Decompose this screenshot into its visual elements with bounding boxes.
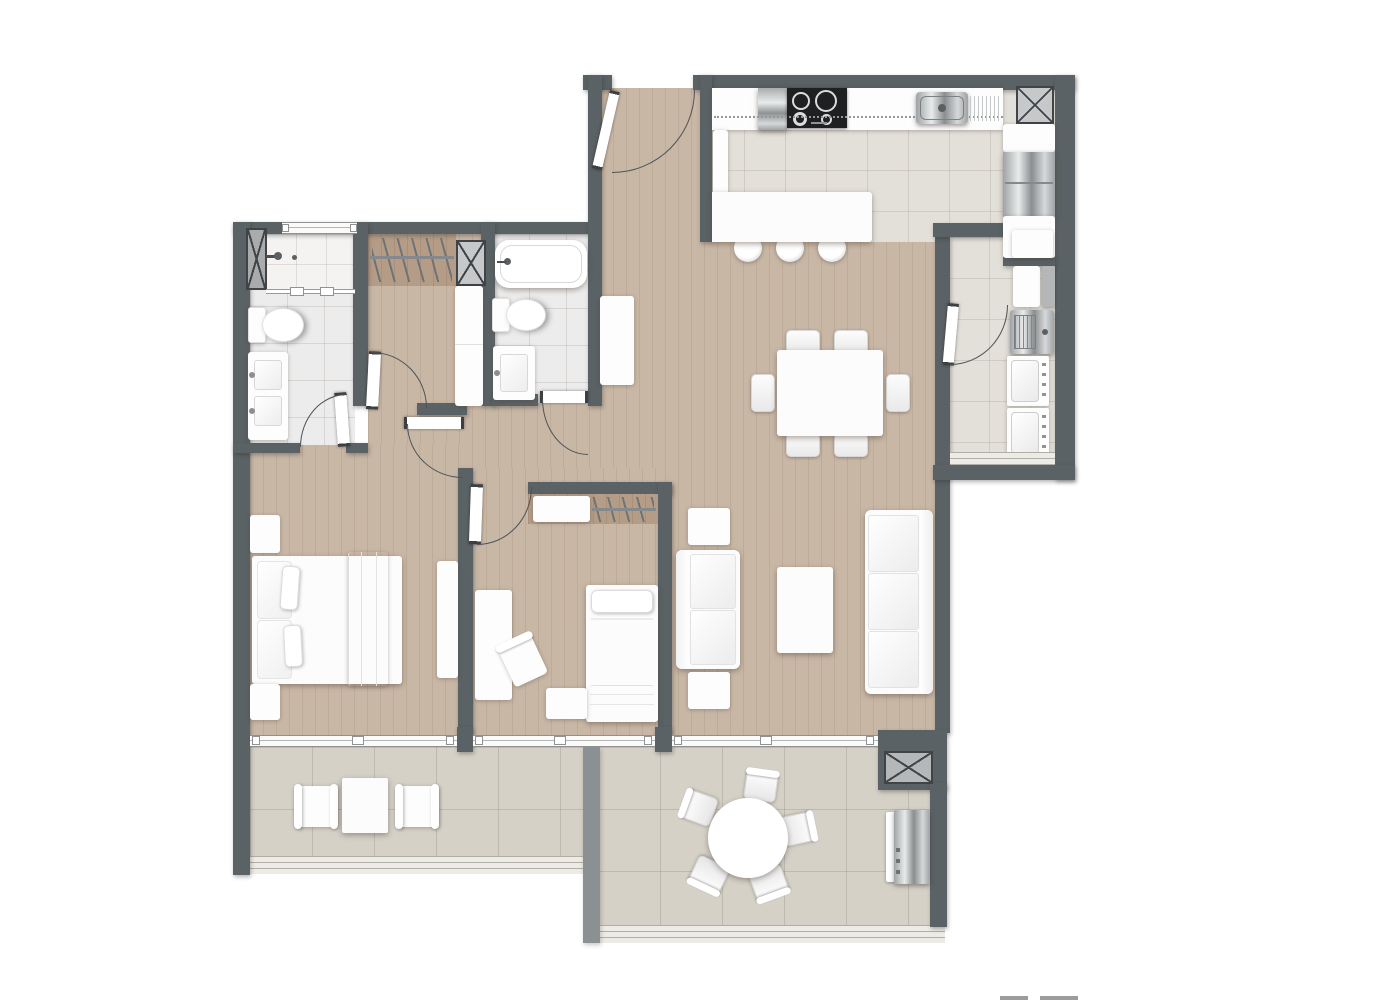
- vanity-sink-basin: [254, 360, 282, 390]
- dining-chair: [834, 433, 868, 457]
- fridge-door-split: [1005, 182, 1053, 184]
- window-pillar-bedrooms: [457, 727, 473, 752]
- faucet-icon: [249, 408, 255, 414]
- dining-chair: [786, 433, 820, 457]
- shower-head-icon: [274, 252, 282, 260]
- double-vanity: [248, 352, 288, 440]
- dining-chair: [751, 374, 775, 412]
- vanity-sink-basin: [500, 354, 528, 392]
- oven-column-icon: [758, 88, 787, 130]
- wall-right-outer: [1055, 75, 1075, 480]
- window-handle: [760, 736, 772, 745]
- balcony-armchair: [295, 786, 337, 827]
- side-table: [688, 672, 730, 709]
- closet-rail-icon: [592, 508, 656, 511]
- toilet-bowl-icon: [506, 299, 546, 331]
- window-handle: [475, 736, 483, 745]
- balcony-table: [342, 778, 388, 833]
- floor-plan-canvas: [0, 0, 1400, 1000]
- sofa-back: [676, 550, 689, 669]
- footer-mark: [1040, 996, 1078, 1000]
- sofa-cushion: [868, 631, 919, 688]
- closet-rail-icon: [370, 256, 454, 259]
- pillow-icon: [279, 565, 300, 610]
- grill-knobs: [896, 848, 900, 878]
- shower-glass: [266, 289, 355, 294]
- side-table: [688, 508, 730, 545]
- faucet-icon: [249, 372, 255, 378]
- vanity-sink-basin: [254, 396, 282, 426]
- foot-fold: [590, 685, 654, 715]
- laundry-upper-cabinet: [1012, 230, 1053, 258]
- wall-bath1-closet: [353, 222, 368, 406]
- refrigerator-icon: [1003, 152, 1055, 216]
- window-handle: [252, 736, 260, 745]
- washer-knobs: [1042, 363, 1046, 399]
- wall-kitchen-island: [700, 75, 712, 242]
- kitchen-island: [712, 192, 872, 242]
- dining-table: [777, 350, 883, 436]
- terrace-round-table: [708, 798, 788, 878]
- window-handle: [554, 736, 566, 745]
- wall-terrace-right: [930, 783, 947, 927]
- window-handle: [350, 224, 357, 232]
- window-pillar-living: [655, 727, 672, 752]
- duvet-fold: [348, 552, 388, 686]
- cooktop-icon: [787, 88, 847, 128]
- shower-glass-handle: [290, 287, 304, 296]
- armrest: [395, 784, 403, 829]
- sofa-cushion: [690, 554, 736, 609]
- window-handle: [446, 736, 454, 745]
- shaft-terrace-icon: [884, 751, 933, 784]
- bathtub-icon: [495, 240, 587, 288]
- wall-terrace-left-pillar: [583, 747, 600, 943]
- sofa-2-seat: [676, 550, 740, 669]
- drainboard-icon: [970, 96, 1000, 121]
- dryer-icon: [1007, 408, 1049, 458]
- armrest: [294, 784, 302, 829]
- sofa-3-seat: [865, 510, 933, 694]
- window-handle: [282, 224, 289, 232]
- window-handle: [644, 736, 652, 745]
- burner-icon: [815, 90, 837, 112]
- armrest: [431, 784, 439, 829]
- vanity: [493, 346, 535, 400]
- laundry-window-sill: [950, 452, 1055, 465]
- tub-faucet-arm: [497, 261, 506, 263]
- closet-shelf: [533, 496, 590, 522]
- dresser: [437, 561, 458, 678]
- bathroom-window: [282, 222, 357, 234]
- burner-icon: [793, 112, 807, 126]
- sofa-cushion: [868, 515, 919, 572]
- window-handle: [352, 736, 364, 745]
- dryer-drum: [1011, 412, 1039, 454]
- balcony-sill: [250, 856, 583, 874]
- laundry-faucet-icon: [1042, 329, 1048, 335]
- closet-hangers-icon: [372, 238, 452, 282]
- shaft-kitchen-icon: [1016, 86, 1054, 124]
- wall-laundry-top: [933, 223, 1013, 237]
- dryer-knobs: [1042, 415, 1046, 451]
- toilet-bowl-icon: [262, 308, 304, 342]
- cooktop-controls: [811, 122, 827, 124]
- balcony-armchair: [396, 786, 438, 827]
- sheet-line: [591, 618, 653, 620]
- dining-chair: [886, 374, 910, 412]
- nightstand: [250, 515, 280, 553]
- shower-floor: [266, 234, 355, 292]
- window-handle: [866, 736, 874, 745]
- single-bed: [586, 585, 658, 722]
- burner-icon: [792, 92, 810, 110]
- kitchen-sink-icon: [916, 92, 968, 124]
- kitchen-tall-cabinet: [713, 130, 728, 195]
- faucet-icon: [494, 370, 500, 376]
- shaft-bathroom1-icon: [246, 228, 267, 290]
- double-bed: [252, 556, 402, 684]
- sofa-cushion: [868, 573, 919, 630]
- washer-icon: [1007, 356, 1049, 406]
- shaft-closet-icon: [456, 240, 486, 286]
- wall-laundry-cab-stub: [1003, 257, 1055, 266]
- terrace-sill: [598, 925, 945, 943]
- sofa-back: [920, 510, 933, 694]
- sink-faucet-icon: [938, 104, 946, 112]
- laundry-cabinet-white: [1013, 266, 1040, 307]
- coffee-table: [777, 567, 833, 653]
- counter-right-top: [1003, 124, 1055, 152]
- grill-icon: [886, 810, 930, 884]
- closet-tall-cabinet: [455, 286, 483, 406]
- wall-bedroom2-top: [528, 482, 672, 494]
- sofa-cushion: [690, 610, 736, 665]
- laundry-cabinet-gray: [1042, 266, 1055, 307]
- nightstand: [546, 688, 587, 719]
- laundry-sink-grate: [1014, 315, 1036, 349]
- pillow-icon: [591, 590, 653, 613]
- console-table: [600, 296, 634, 385]
- window-handle: [674, 736, 682, 745]
- shower-drain-icon: [292, 255, 297, 260]
- wall-bath1-bottom-left: [233, 443, 300, 453]
- shower-glass-handle: [320, 287, 334, 296]
- armrest: [330, 784, 338, 829]
- washer-drum: [1011, 360, 1039, 402]
- bathtub-inner: [500, 245, 582, 283]
- wall-south-kitchen: [933, 465, 1075, 480]
- living-room-window: [672, 735, 878, 747]
- nightstand: [250, 684, 280, 720]
- pillow-icon: [283, 625, 303, 668]
- footer-mark: [1000, 996, 1028, 1000]
- laundry-sink-icon: [1010, 310, 1054, 354]
- wall-bedroom2-living: [658, 482, 672, 733]
